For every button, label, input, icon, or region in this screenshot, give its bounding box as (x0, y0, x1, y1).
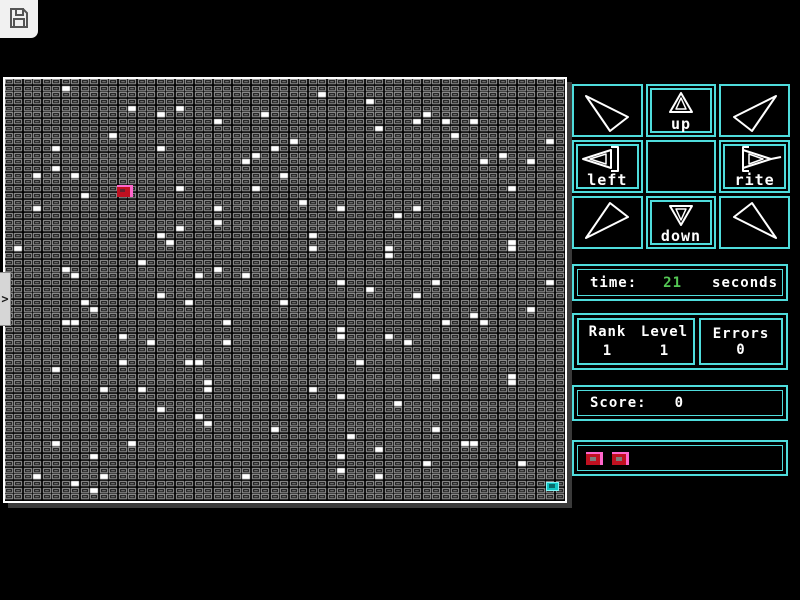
score-value: 0 (675, 395, 684, 411)
score-label: Score: (590, 395, 647, 411)
chevron-right-icon: > (1, 292, 8, 306)
arrow-down-left-icon (575, 201, 639, 245)
goal-cell (546, 482, 559, 491)
time-unit: seconds (712, 275, 778, 291)
errors-box: Errors 0 (699, 318, 783, 365)
floppy-save-icon (7, 6, 31, 33)
dpad-down-button[interactable]: down (646, 196, 717, 249)
arrow-down-icon (649, 202, 713, 228)
dpad-down-left-button[interactable] (572, 196, 643, 249)
dpad-up-label: up (671, 117, 691, 132)
level-value: 1 (636, 342, 693, 361)
dpad-up-right-button[interactable] (719, 84, 790, 137)
dpad-right-label: rite (735, 173, 775, 188)
dpad-right-button[interactable]: rite (719, 140, 790, 193)
rank-label: Rank (579, 323, 636, 342)
dpad-panel: up left (572, 84, 790, 249)
arrow-left-icon (575, 146, 639, 172)
game-board[interactable] (3, 77, 567, 503)
arrow-up-left-icon (575, 89, 639, 133)
errors-label: Errors (713, 326, 770, 342)
level-label: Level (636, 323, 693, 342)
grid-canvas (5, 79, 565, 501)
dpad-left-label: left (587, 173, 627, 188)
dpad-up-left-button[interactable] (572, 84, 643, 137)
dpad-down-right-button[interactable] (719, 196, 790, 249)
time-label: time: (590, 275, 637, 291)
time-panel: time: 21 seconds (572, 264, 788, 301)
sidebar-expand-handle[interactable]: > (0, 272, 11, 326)
dpad-up-button[interactable]: up (646, 84, 717, 137)
life-indicator (612, 452, 629, 465)
rank-errors-panel: Rank Level 1 1 Errors 0 (572, 313, 788, 370)
time-value: 21 (663, 275, 682, 291)
rank-level-box: Rank Level 1 1 (577, 318, 695, 365)
arrow-up-right-icon (723, 89, 787, 133)
save-button[interactable] (0, 0, 38, 38)
dpad-left-button[interactable]: left (572, 140, 643, 193)
game-screen: > up (0, 0, 800, 600)
dpad-down-label: down (661, 229, 701, 244)
life-indicator (586, 452, 603, 465)
arrow-up-icon (649, 90, 713, 116)
arrow-right-icon (723, 146, 787, 172)
player-cell (117, 185, 133, 197)
score-panel: Score: 0 (572, 385, 788, 421)
dpad-center-cell (646, 140, 717, 193)
arrow-down-right-icon (723, 201, 787, 245)
errors-value: 0 (736, 342, 745, 358)
rank-value: 1 (579, 342, 636, 361)
lives-panel (572, 440, 788, 476)
